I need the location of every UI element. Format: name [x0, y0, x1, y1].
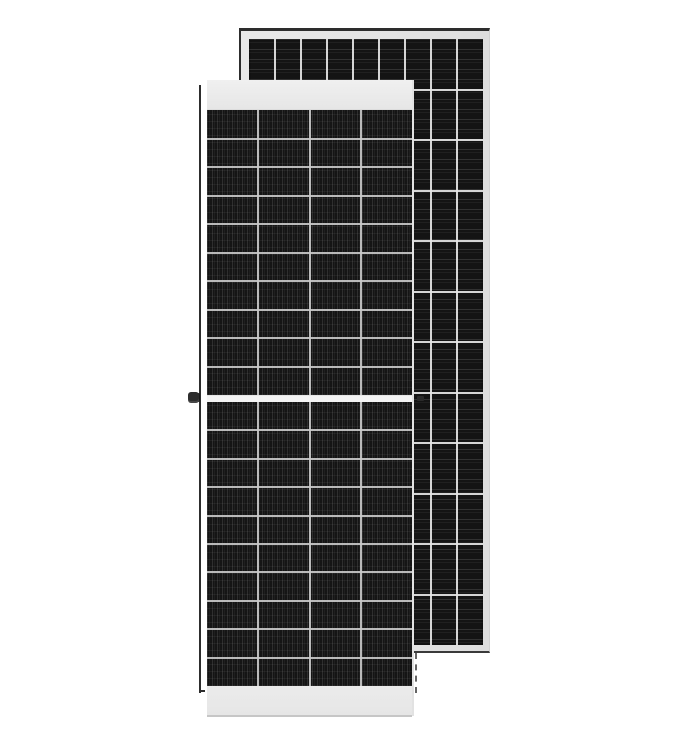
cell-gridline-horizontal: [207, 280, 412, 282]
cell-gridline-horizontal: [207, 628, 412, 630]
front-cell-grid-upper: [207, 110, 412, 395]
cell-gridline-horizontal: [207, 486, 412, 488]
frame-mounting-mark: [417, 396, 424, 401]
panel-side-edge-foot: [200, 690, 205, 692]
cell-gridline-horizontal: [207, 515, 412, 517]
cell-gridline-horizontal: [207, 138, 412, 140]
cell-gridline-horizontal: [207, 366, 412, 368]
cell-gridline-horizontal: [207, 337, 412, 339]
solar-panel-front: [199, 80, 414, 717]
cell-gridline-horizontal: [207, 657, 412, 659]
cell-gridline-horizontal: [207, 166, 412, 168]
panel-body: [207, 80, 412, 717]
cell-gridline-horizontal: [207, 600, 412, 602]
cell-gridline-horizontal: [207, 252, 412, 254]
cell-gridline-horizontal: [207, 223, 412, 225]
panel-top-band: [207, 80, 412, 110]
cell-gridline-horizontal: [207, 429, 412, 431]
panel-bottom-band: [207, 686, 412, 717]
product-image: [0, 0, 684, 748]
grounding-screw: [188, 392, 199, 403]
dashed-edge-detail: [415, 653, 417, 693]
cell-gridline-horizontal: [207, 571, 412, 573]
cell-gridline-horizontal: [207, 195, 412, 197]
half-cut-center-divider: [207, 395, 412, 402]
cell-gridline-horizontal: [207, 543, 412, 545]
panel-right-frame: [412, 80, 414, 716]
cell-gridline-horizontal: [207, 458, 412, 460]
panel-side-edge: [199, 85, 201, 693]
cell-gridline-horizontal: [207, 309, 412, 311]
front-cell-grid-lower: [207, 402, 412, 686]
